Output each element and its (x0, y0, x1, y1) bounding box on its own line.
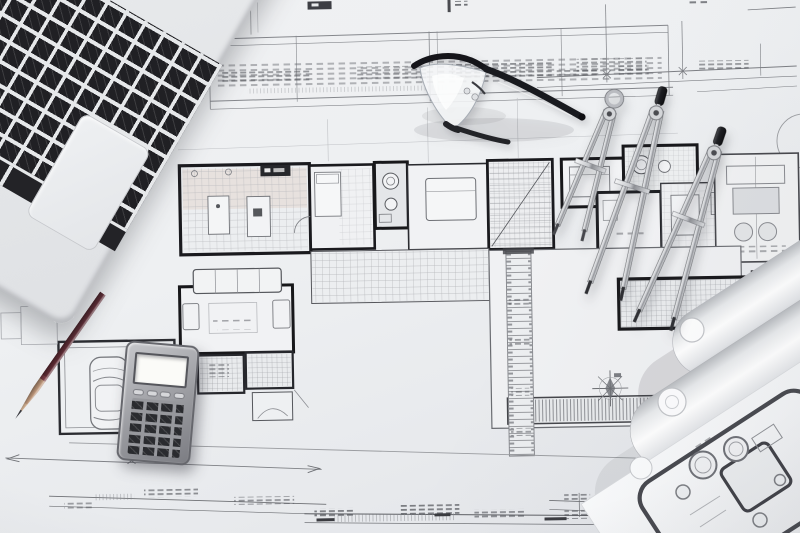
room-utility (374, 162, 408, 229)
photo-architectural-blueprints (0, 0, 800, 533)
furniture (671, 195, 700, 235)
sofa (426, 178, 477, 221)
construction-lines (177, 95, 678, 167)
room-kitchen (179, 164, 311, 255)
patio-tiles (311, 248, 490, 303)
top-elevation-drawing (209, 25, 673, 109)
calculator-pill-button (173, 392, 184, 399)
se-vertical-hatch (696, 373, 800, 437)
sink (658, 160, 670, 172)
bottom-elevation-center (304, 501, 644, 531)
toilet (632, 156, 650, 174)
calculator-screen (133, 352, 190, 389)
room-living (179, 268, 293, 354)
porch-steps (252, 390, 309, 421)
tiled-entry (198, 352, 294, 394)
bed (314, 172, 341, 216)
room-label-text (213, 320, 255, 325)
calculator-pill-button (146, 390, 157, 397)
dimension-lines-lower (5, 433, 654, 478)
bottom-elevation-left (49, 486, 326, 519)
calculator (116, 340, 200, 466)
top-edge-annotations (250, 0, 707, 35)
stairwell (487, 159, 554, 249)
kitchen-island (208, 196, 230, 234)
calculator-pill-button (160, 391, 171, 398)
calculator-pill-button (133, 389, 144, 396)
se-tiled-block (618, 271, 800, 329)
calculator-keypad (127, 398, 184, 458)
